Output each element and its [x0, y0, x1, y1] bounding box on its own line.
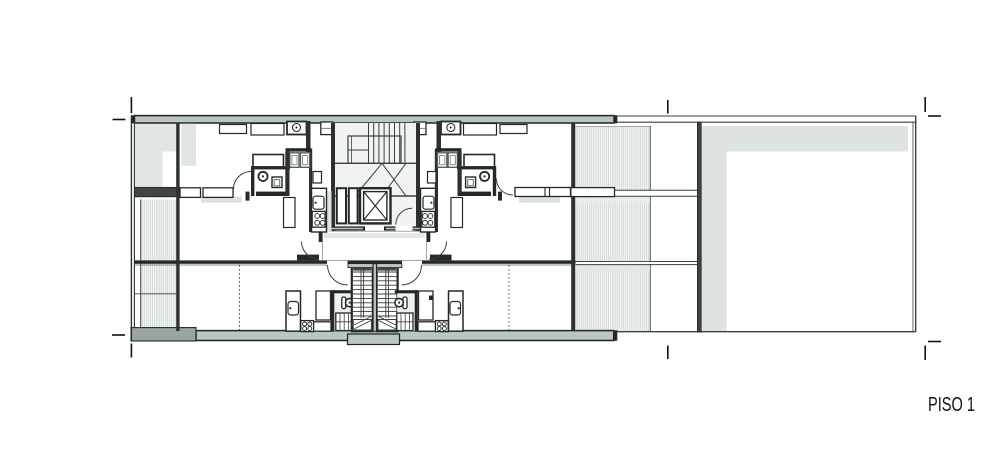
svg-text:PISO 1: PISO 1 — [928, 394, 975, 416]
